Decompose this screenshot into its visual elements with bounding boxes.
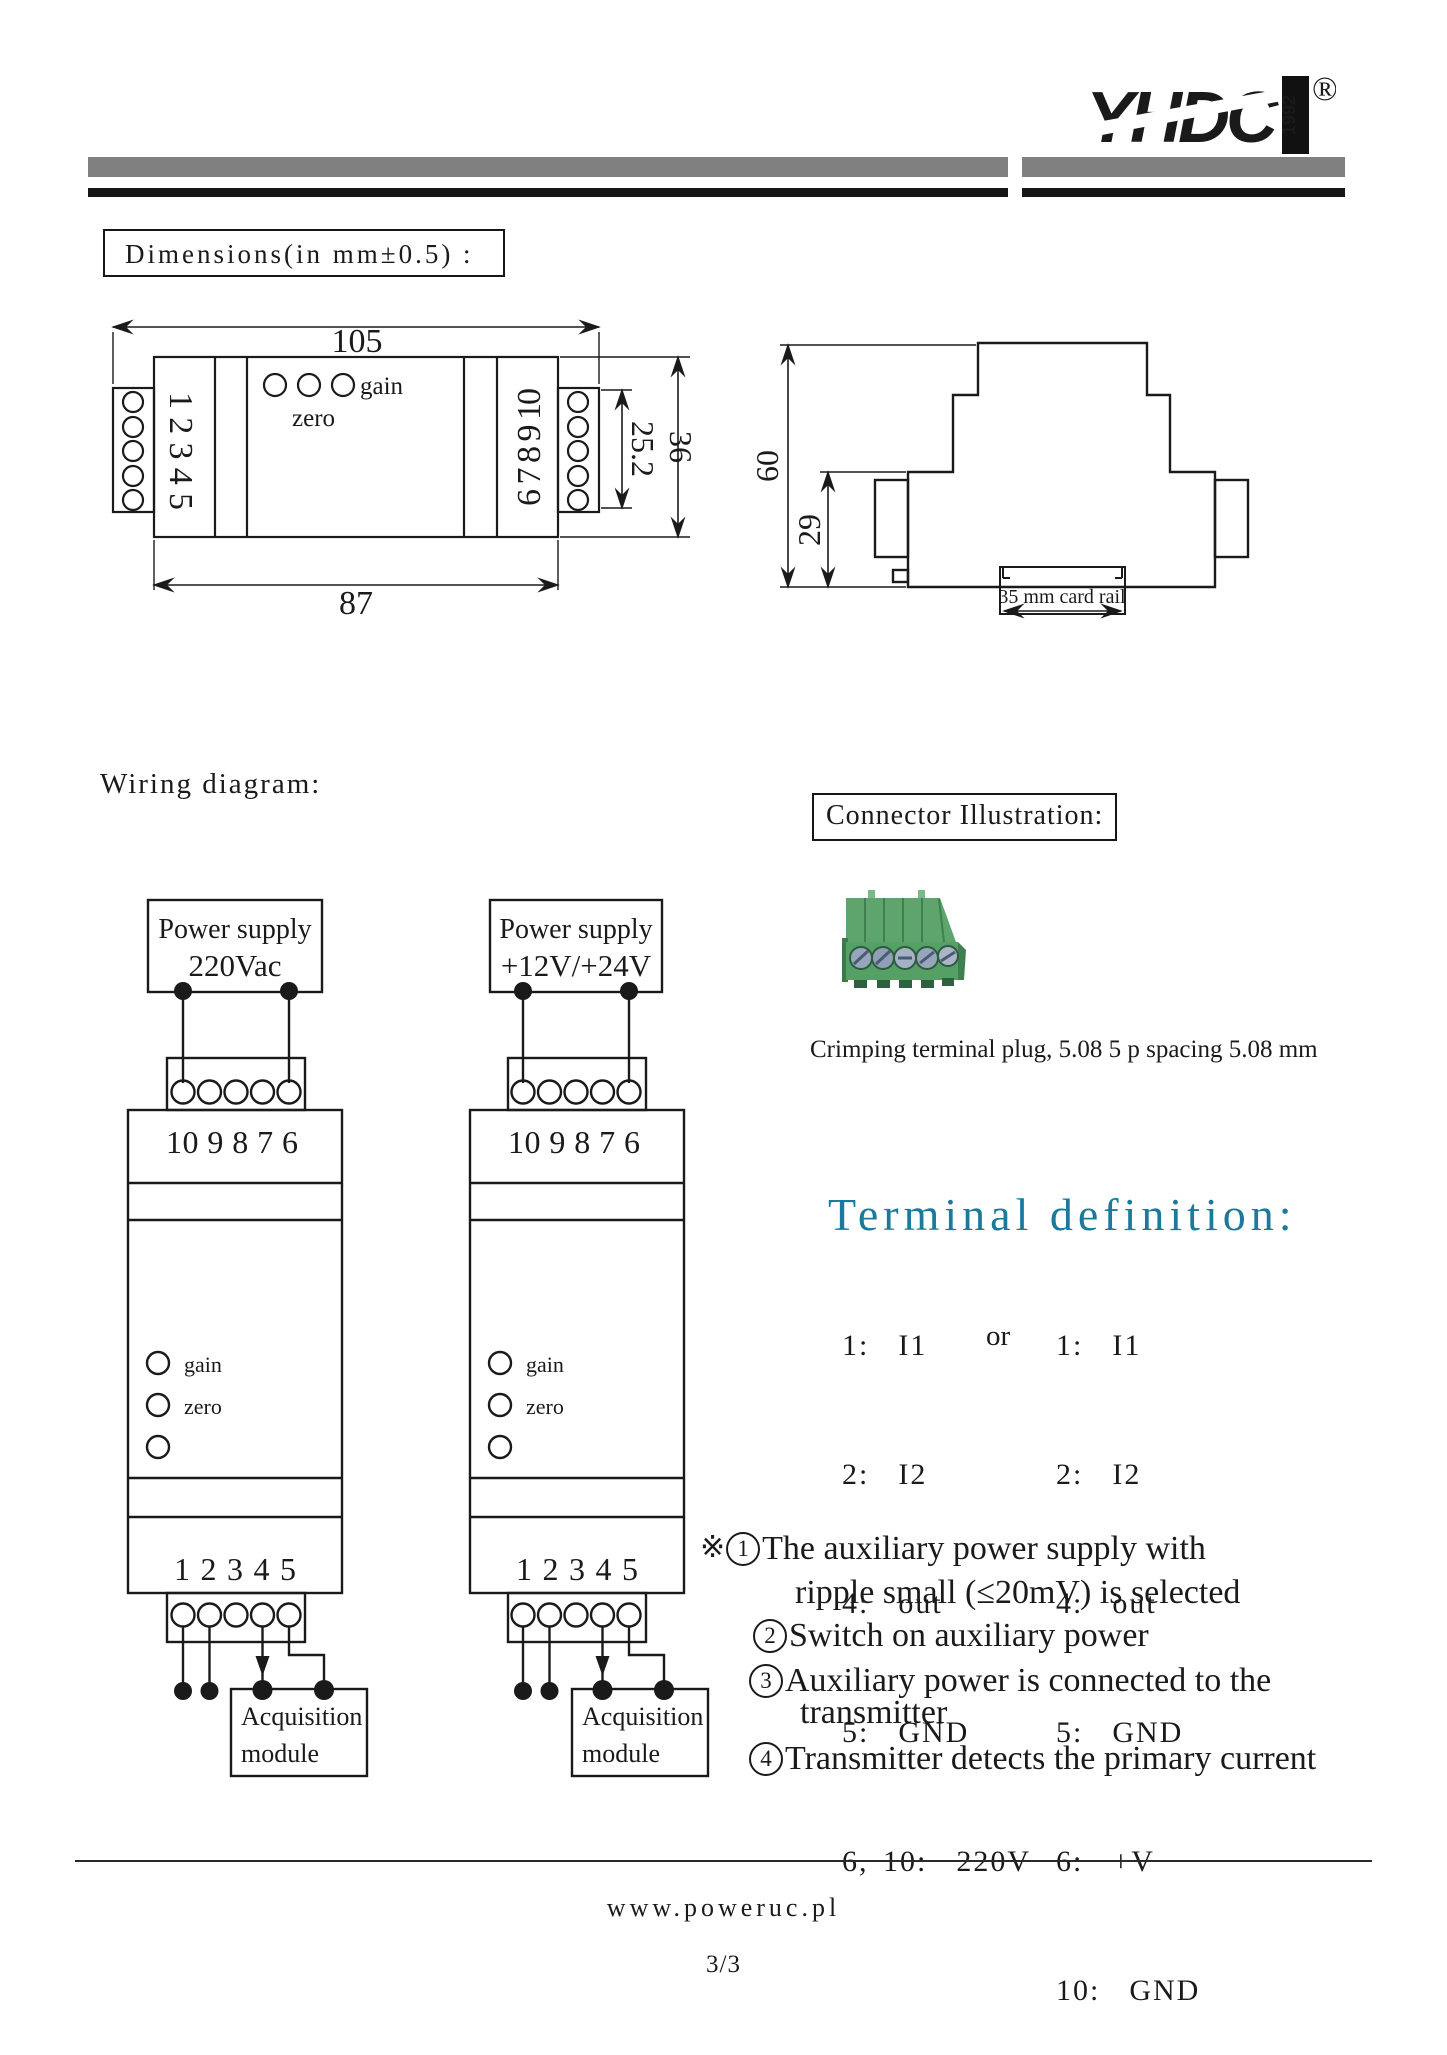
supply-title: Power supply — [158, 914, 311, 945]
dim-lower-height: 29 — [791, 514, 827, 546]
top-terminal-numbers: 10 9 8 7 6 — [508, 1124, 640, 1160]
gain-label: gain — [360, 373, 404, 400]
supply-value: +12V/+24V — [501, 948, 652, 983]
wire-arrow-icon — [256, 1656, 270, 1676]
wire-arrow-icon — [596, 1656, 610, 1676]
dim-overall-height: 60 — [749, 450, 785, 482]
dim-body-width: 87 — [339, 585, 373, 622]
gain-label: gain — [526, 1352, 564, 1377]
wiring-diagram-220v: Power supply 220Vac 10 9 8 7 6 gain zero… — [128, 900, 367, 1776]
card-rail-label: 35 mm card rail — [998, 586, 1126, 608]
gain-label: gain — [184, 1352, 222, 1377]
supply-title: Power supply — [499, 914, 652, 945]
acquisition-module-label: Acquisition — [582, 1702, 703, 1731]
acquisition-module-label: module — [241, 1739, 319, 1768]
dim-overall-width: 105 — [332, 323, 383, 360]
top-terminal-numbers: 10 9 8 7 6 — [166, 1124, 298, 1160]
dim-body-height: 36 — [663, 431, 699, 463]
acquisition-module-label: module — [582, 1739, 660, 1768]
zero-label: zero — [184, 1394, 222, 1419]
side-view-drawing — [780, 343, 1248, 614]
front-view-labels: gain zero 1 2 3 4 5 6 7 8 9 10 105 87 25… — [162, 323, 699, 622]
front-terminals-left: 1 2 3 4 5 — [162, 392, 199, 510]
wiring-diagram-dc: Power supply +12V/+24V 10 9 8 7 6 gain z… — [470, 900, 708, 1776]
acquisition-module-label: Acquisition — [241, 1702, 362, 1731]
front-terminals-right: 6 7 8 9 10 — [511, 388, 548, 506]
bottom-terminal-numbers: 1 2 3 4 5 — [516, 1551, 638, 1587]
dim-terminal-height: 25.2 — [625, 421, 661, 477]
zero-label: zero — [292, 405, 335, 432]
drawings-layer: gain zero 1 2 3 4 5 6 7 8 9 10 105 87 25… — [0, 0, 1447, 2048]
zero-label: zero — [526, 1394, 564, 1419]
side-view-labels: 60 29 35 mm card rail — [749, 450, 1126, 608]
bottom-terminal-numbers: 1 2 3 4 5 — [174, 1551, 296, 1587]
supply-value: 220Vac — [189, 948, 282, 983]
